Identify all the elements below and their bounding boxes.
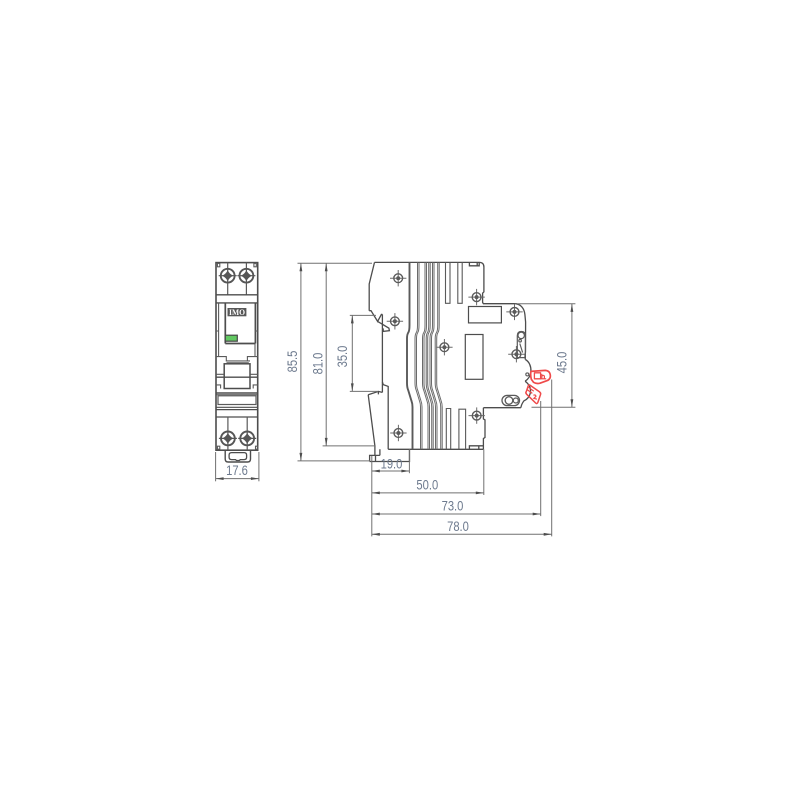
svg-text:81.0: 81.0 bbox=[310, 352, 326, 374]
svg-text:17.6: 17.6 bbox=[226, 462, 248, 478]
svg-text:73.0: 73.0 bbox=[442, 498, 464, 514]
svg-text:45.0: 45.0 bbox=[554, 351, 570, 373]
svg-text:50.0: 50.0 bbox=[416, 476, 438, 492]
svg-text:19.0: 19.0 bbox=[381, 455, 403, 471]
svg-text:IMO: IMO bbox=[229, 308, 245, 317]
svg-text:85.5: 85.5 bbox=[284, 350, 300, 372]
svg-text:78.0: 78.0 bbox=[447, 518, 469, 534]
svg-text:35.0: 35.0 bbox=[334, 345, 350, 367]
